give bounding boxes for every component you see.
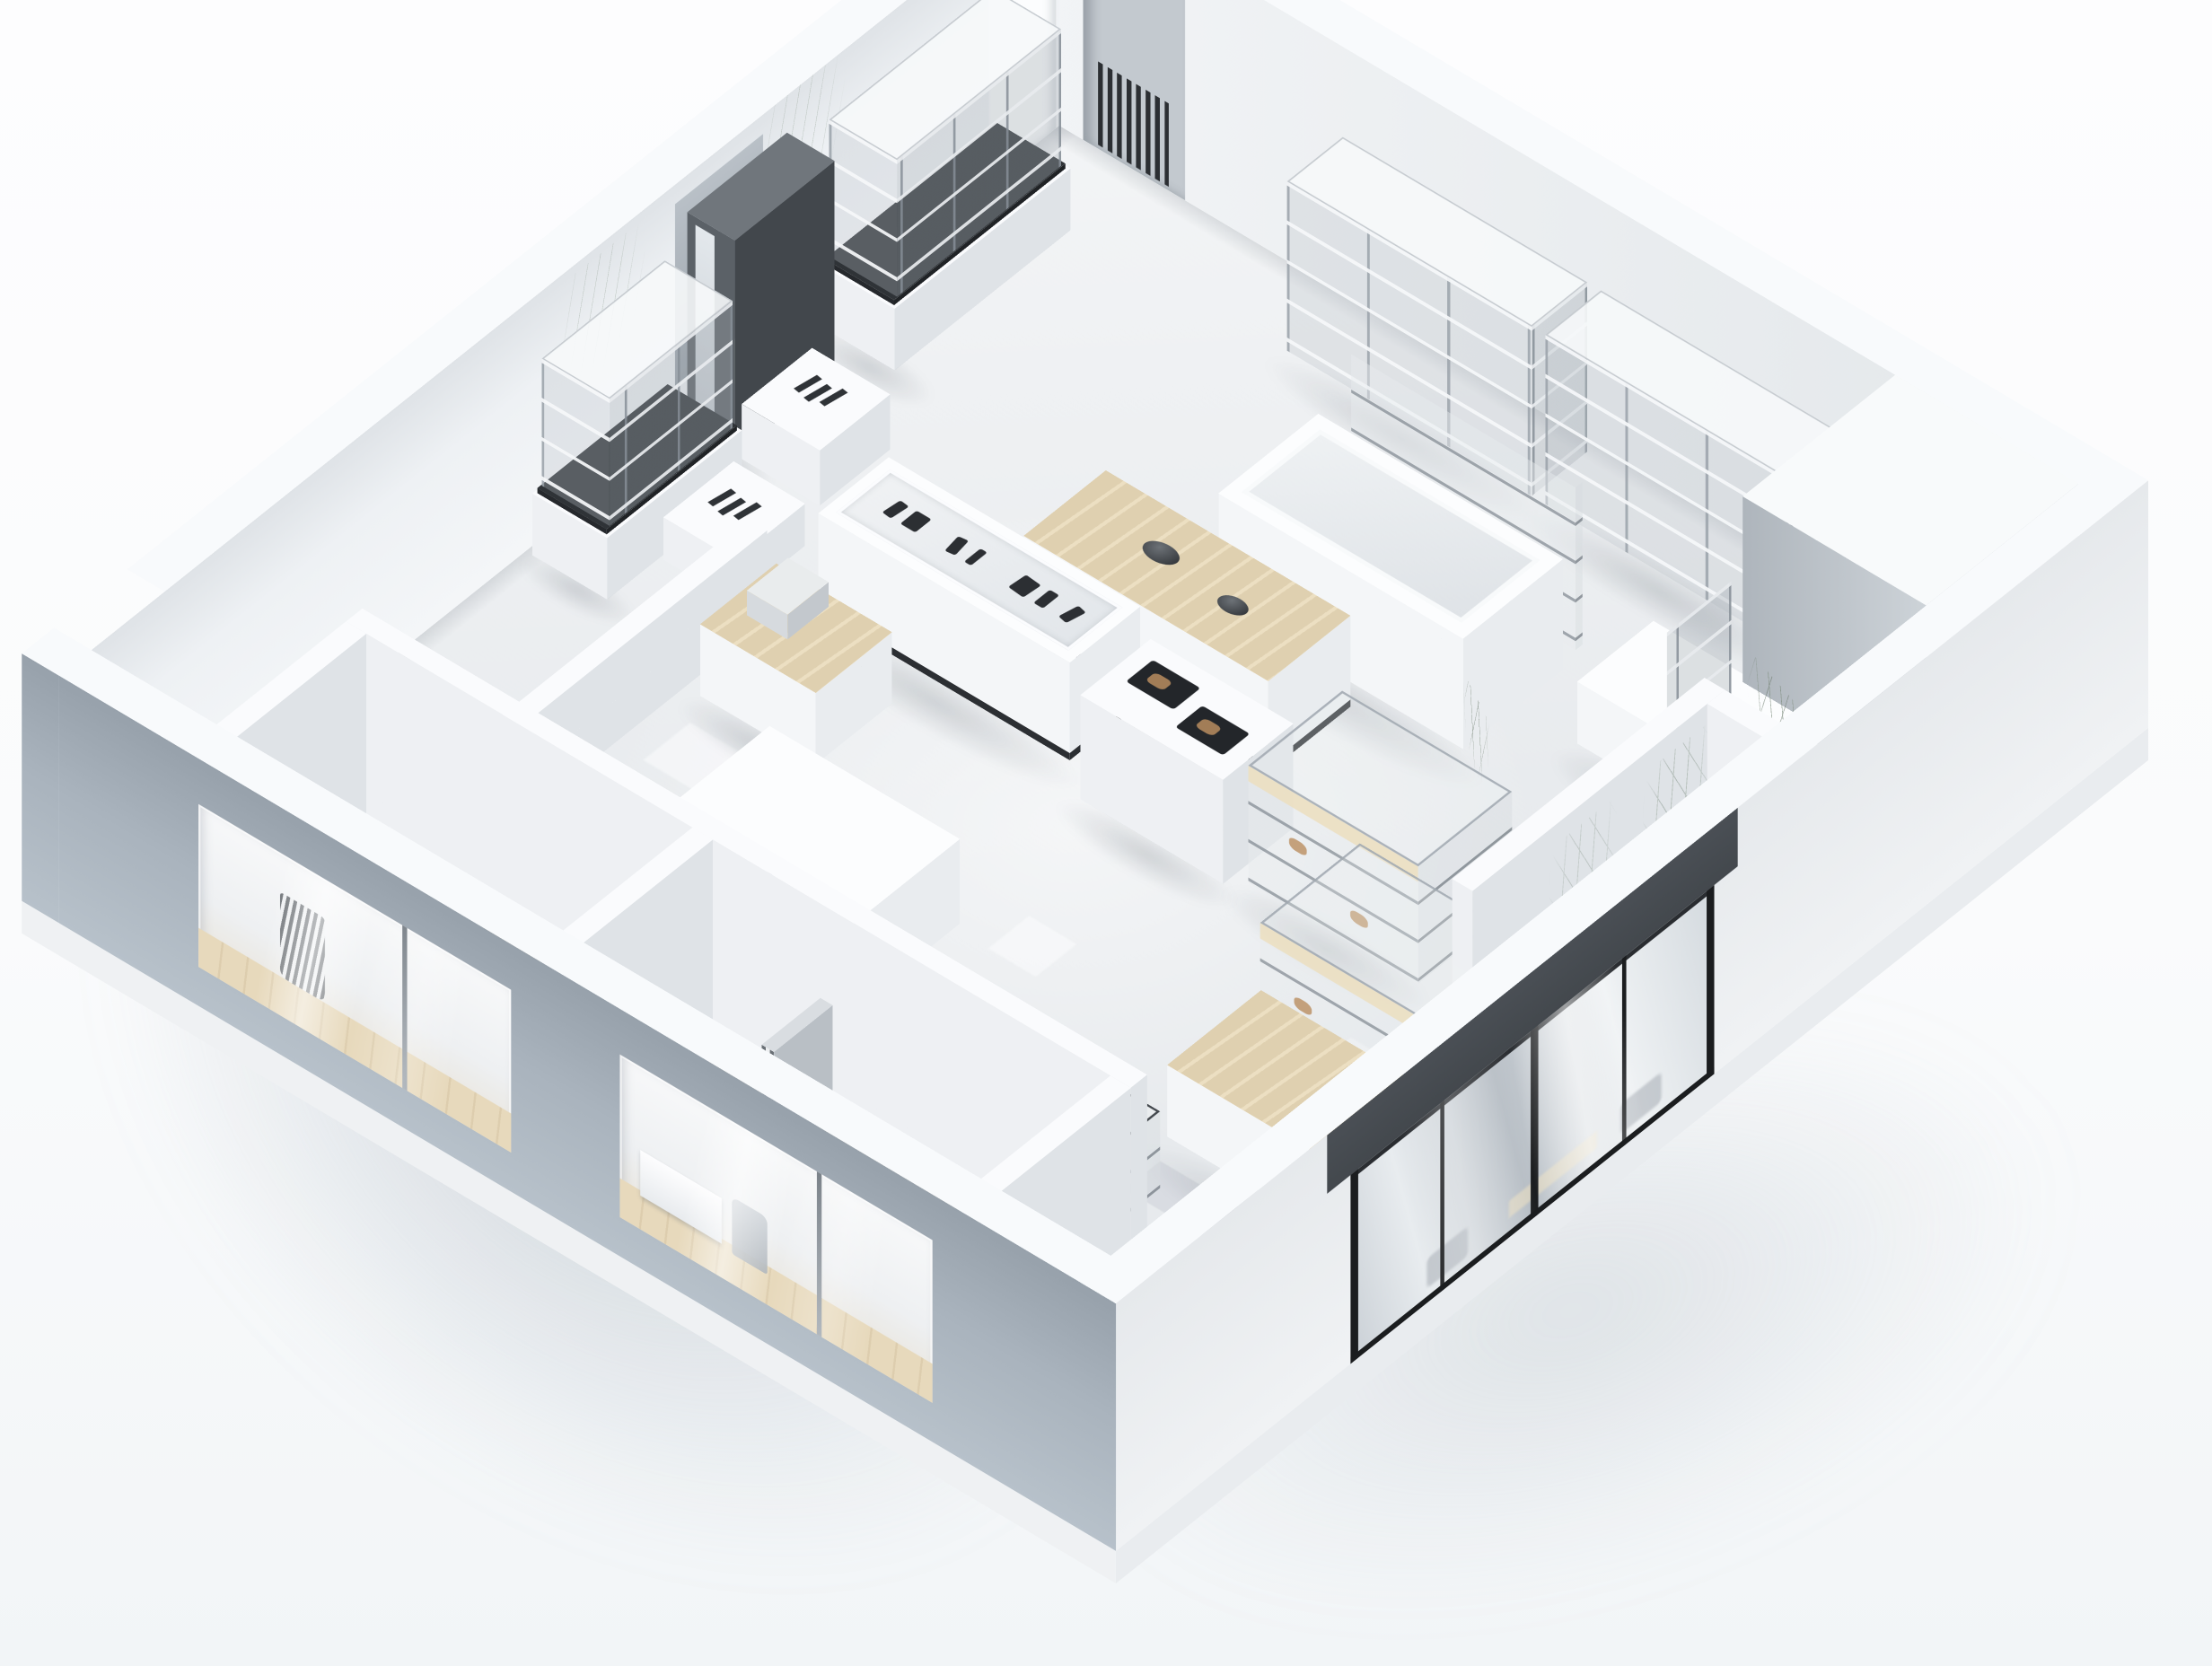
- product-glyph: [882, 501, 908, 519]
- product-slot: [1175, 706, 1250, 755]
- product: [1289, 836, 1307, 858]
- product: [1145, 672, 1172, 691]
- display-stone: [1212, 592, 1254, 620]
- product: [1195, 718, 1223, 737]
- product-glyph: [1058, 606, 1086, 623]
- product-glyph: [964, 548, 987, 566]
- isometric-store-render: [0, 0, 2212, 1666]
- product-glyph: [1008, 574, 1041, 597]
- display-stone: [1136, 536, 1186, 569]
- product-glyph: [900, 511, 932, 532]
- face-right: [1576, 482, 1583, 651]
- product-slot: [1126, 660, 1200, 709]
- product-glyph: [944, 536, 969, 555]
- product-glyph: [1033, 590, 1059, 609]
